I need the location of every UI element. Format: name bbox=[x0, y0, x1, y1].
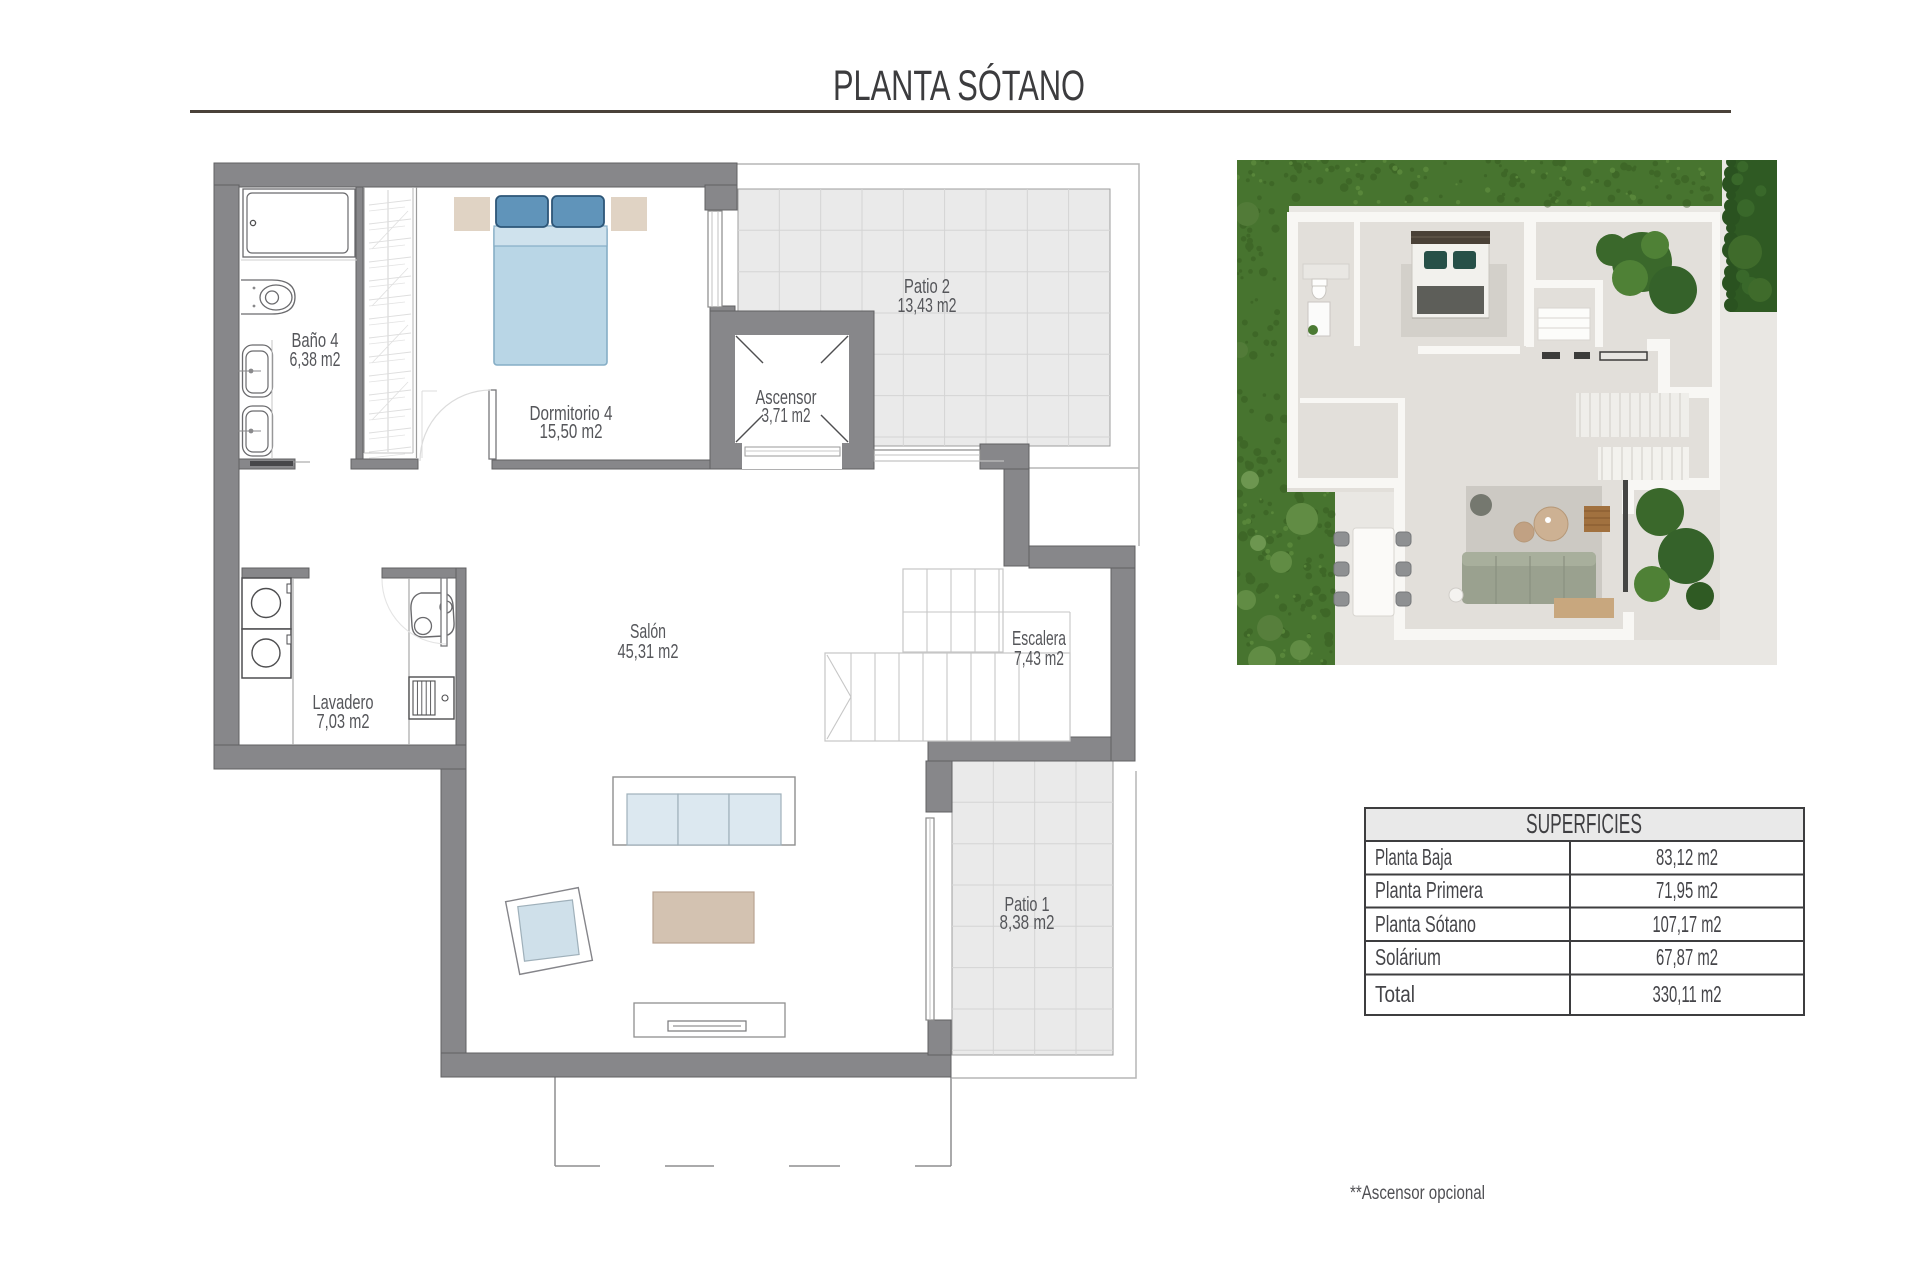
svg-text:SUPERFICIES: SUPERFICIES bbox=[1526, 808, 1642, 839]
svg-text:45,31 m2: 45,31 m2 bbox=[618, 641, 679, 663]
svg-text:PLANTA SÓTANO: PLANTA SÓTANO bbox=[833, 62, 1085, 110]
svg-text:Planta Primera: Planta Primera bbox=[1375, 877, 1483, 903]
svg-text:7,03 m2: 7,03 m2 bbox=[317, 711, 370, 733]
svg-text:107,17 m2: 107,17 m2 bbox=[1653, 911, 1722, 937]
svg-text:Planta Baja: Planta Baja bbox=[1375, 844, 1452, 870]
svg-text:8,38 m2: 8,38 m2 bbox=[1000, 912, 1055, 934]
svg-text:13,43 m2: 13,43 m2 bbox=[898, 295, 957, 317]
svg-text:7,43 m2: 7,43 m2 bbox=[1014, 648, 1064, 670]
svg-text:15,50 m2: 15,50 m2 bbox=[540, 421, 603, 443]
svg-text:83,12 m2: 83,12 m2 bbox=[1656, 844, 1718, 870]
svg-text:Total: Total bbox=[1375, 981, 1415, 1007]
svg-text:**Ascensor opcional: **Ascensor opcional bbox=[1350, 1183, 1485, 1204]
svg-text:3,71 m2: 3,71 m2 bbox=[762, 405, 811, 427]
svg-text:71,95 m2: 71,95 m2 bbox=[1656, 877, 1718, 903]
svg-text:6,38 m2: 6,38 m2 bbox=[290, 349, 341, 371]
svg-text:Solárium: Solárium bbox=[1375, 944, 1441, 970]
svg-text:Salón: Salón bbox=[630, 621, 666, 643]
svg-text:67,87 m2: 67,87 m2 bbox=[1656, 944, 1718, 970]
svg-text:330,11 m2: 330,11 m2 bbox=[1653, 981, 1722, 1007]
svg-text:Planta Sótano: Planta Sótano bbox=[1375, 911, 1476, 937]
svg-text:Escalera: Escalera bbox=[1012, 628, 1067, 650]
